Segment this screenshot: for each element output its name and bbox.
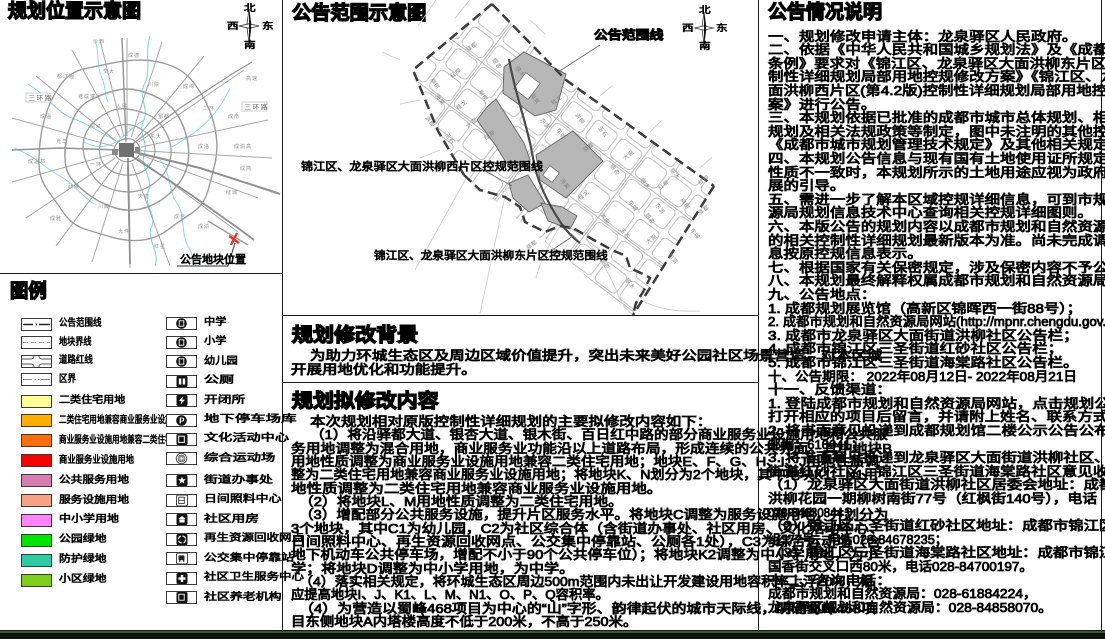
svg-text:银杏: 银杏 [490,56,504,70]
svg-text:成雅: 成雅 [50,215,62,222]
svg-text:成自: 成自 [174,213,186,220]
svg-text:蜀都: 蜀都 [158,114,170,120]
svg-text:成绵: 成绵 [183,83,195,90]
svg-text:成德: 成德 [128,52,140,59]
svg-text:成南: 成南 [228,113,240,120]
svg-text:大面: 大面 [644,232,658,246]
svg-text:东大: 东大 [150,133,162,140]
svg-text:一环: 一环 [90,162,102,168]
svg-text:车城: 车城 [688,226,702,240]
svg-text:大面: 大面 [621,148,635,162]
svg-text:驿都: 驿都 [696,203,710,217]
svg-text:驿都: 驿都 [464,40,478,54]
svg-text:光华: 光华 [56,138,68,145]
svg-text:成温: 成温 [40,113,52,120]
svg-text:红柳: 红柳 [696,173,710,187]
svg-text:红星: 红星 [154,243,166,250]
svg-text:川藏: 川藏 [98,203,110,210]
svg-text:柳树: 柳树 [678,196,692,210]
svg-text:银木: 银木 [668,166,682,180]
svg-text:柳树: 柳树 [476,88,490,102]
svg-text:洪柳: 洪柳 [573,111,587,125]
svg-text:大件: 大件 [118,228,130,235]
svg-text:三环路: 三环路 [29,93,53,102]
svg-text:成渝: 成渝 [198,223,210,230]
svg-text:东洪: 东洪 [666,251,680,265]
svg-text:老成灌: 老成灌 [78,93,96,100]
svg-text:人民: 人民 [116,104,128,110]
svg-text:三环路: 三环路 [245,102,269,111]
svg-text:P: P [179,416,185,425]
svg-text:高速: 高速 [246,75,258,82]
svg-text:清江: 清江 [90,123,102,130]
svg-text:沙西: 沙西 [93,39,105,45]
svg-text:天府: 天府 [138,193,150,200]
svg-text:成洛: 成洛 [198,143,210,150]
svg-text:成渝高: 成渝高 [234,143,252,150]
svg-text:武侯: 武侯 [68,183,80,190]
svg-text:绕城: 绕城 [226,189,238,196]
svg-text:成简: 成简 [240,165,252,172]
svg-text:交大: 交大 [103,68,115,75]
svg-text:川陕: 川陕 [148,81,160,88]
svg-text:车城: 车城 [626,198,640,212]
svg-text:玉石: 玉石 [596,125,609,139]
svg-text:成温邛: 成温邛 [28,158,46,165]
svg-text:二环: 二环 [203,106,215,112]
svg-text:都江堰: 都江堰 [57,73,75,80]
